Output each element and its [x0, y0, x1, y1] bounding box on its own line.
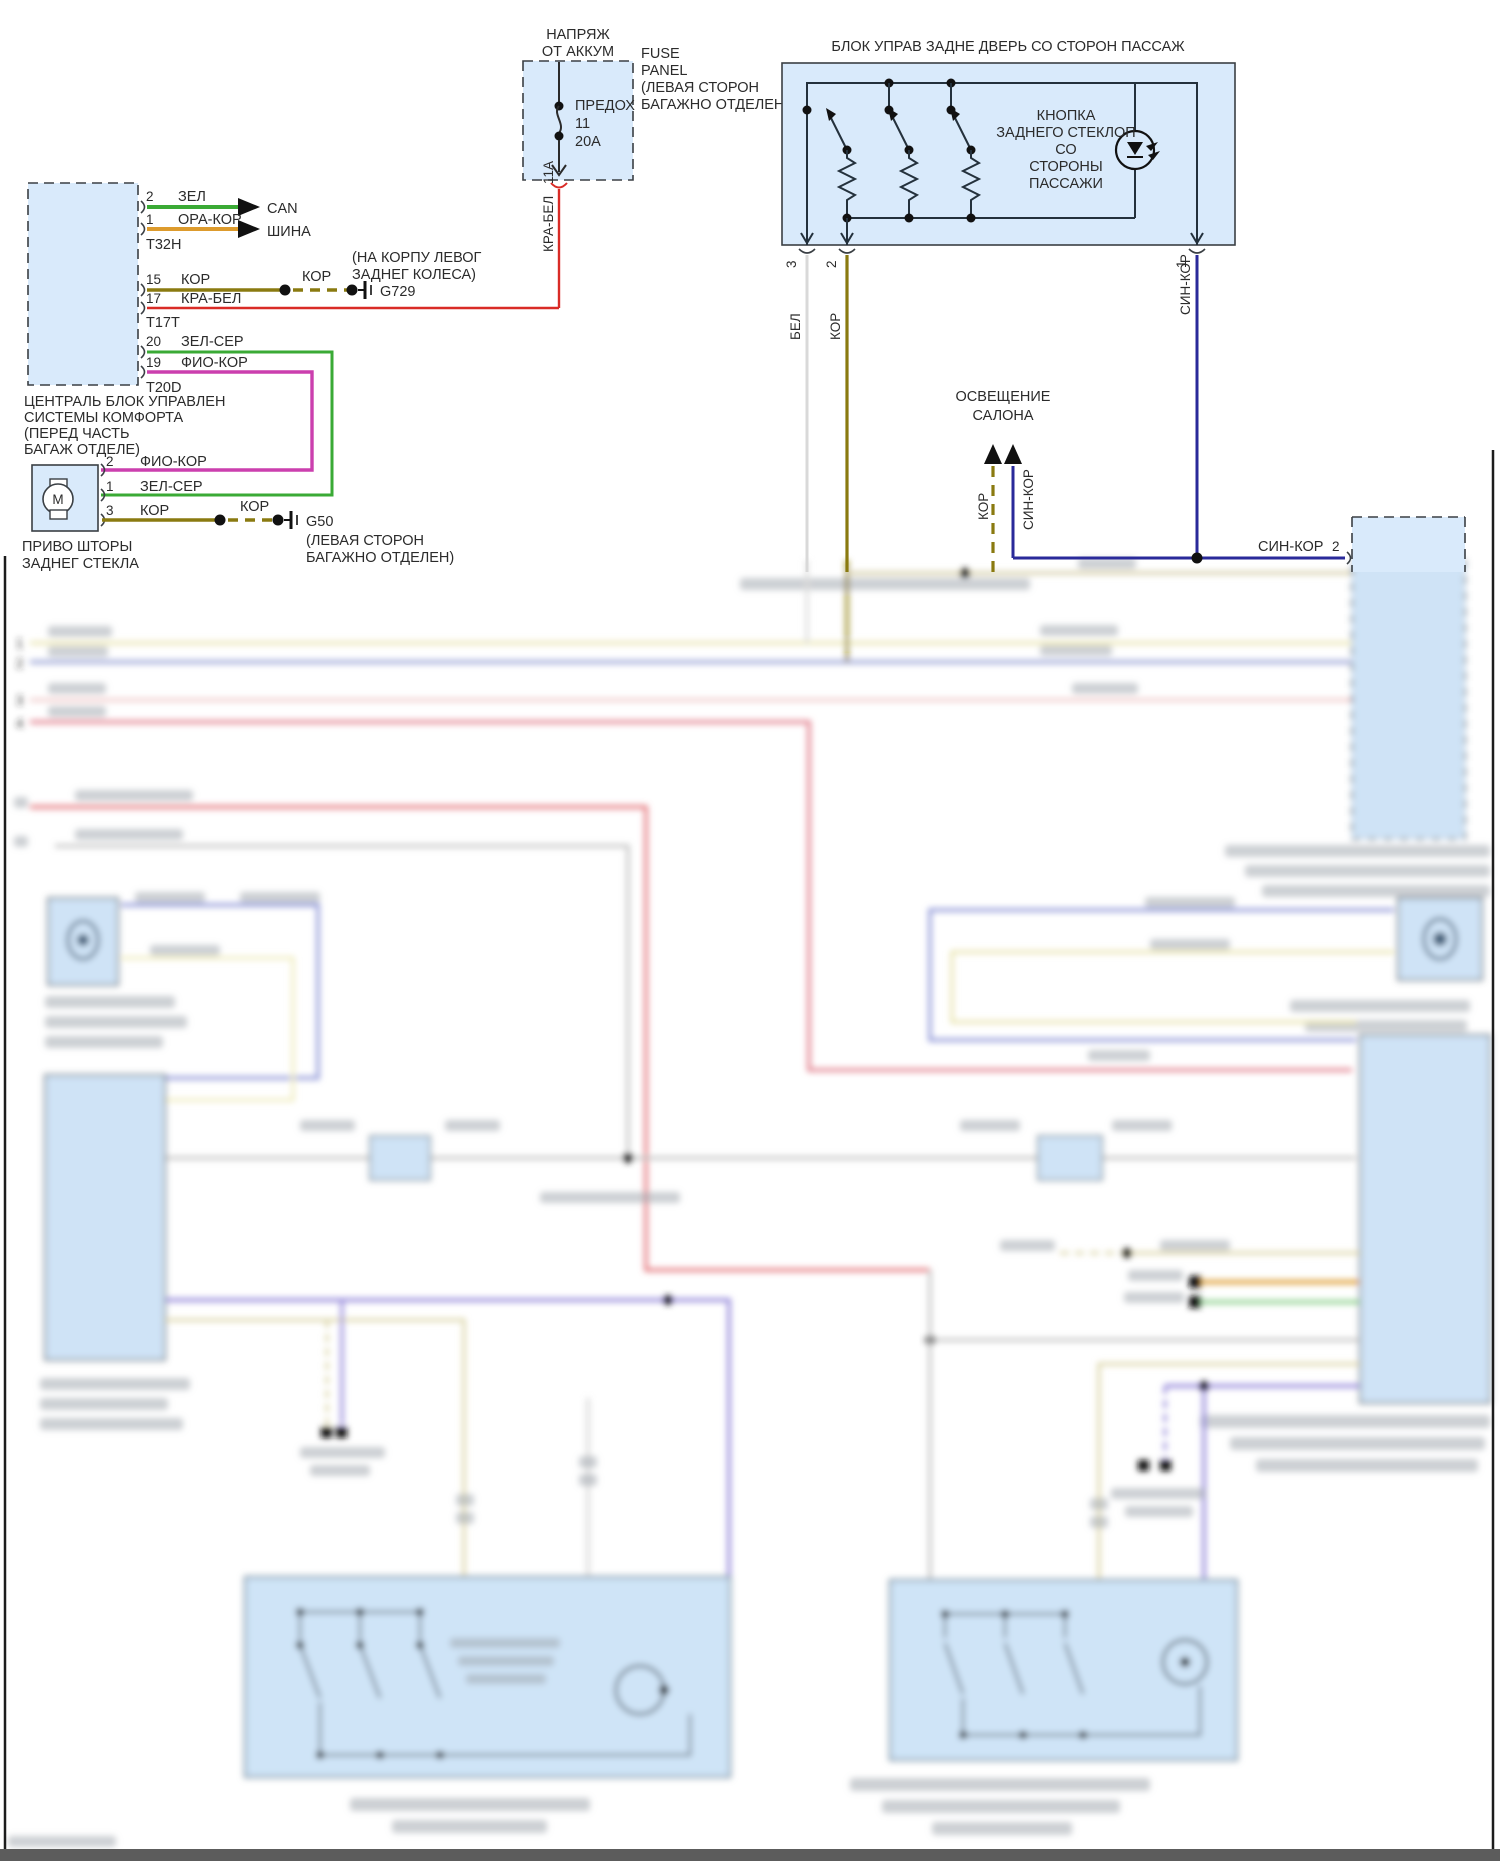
motor-pin1: 1 — [106, 479, 114, 494]
can-label: CAN — [267, 201, 298, 217]
panel-location-1: (ЛЕВАЯ СТОРОН — [641, 80, 759, 96]
panel-location-2: БАГАЖНО ОТДЕЛЕН) — [641, 97, 789, 113]
motor-title-1: ПРИВО ШТОРЫ — [22, 539, 132, 555]
bel-wire-label: БЕЛ — [788, 313, 803, 340]
pin19-wire-label: ФИО-КОР — [181, 355, 248, 371]
motor-pin3: 3 — [106, 503, 114, 518]
button-label-2: ЗАДНЕГО СТЕКЛОП — [996, 125, 1135, 141]
salon-label-2: САЛОНА — [972, 408, 1033, 424]
blur-right-tall-block — [1360, 1035, 1490, 1403]
pin15-number: 15 — [146, 272, 161, 287]
blur-right-switch-box — [890, 1580, 1237, 1760]
g50-label: G50 — [306, 514, 333, 530]
motor-wire1: ЗЕЛ-СЕР — [140, 479, 203, 495]
row-number-1: 1 — [16, 636, 24, 651]
bus-label: ШИНА — [267, 224, 311, 240]
comfort-title-2: СИСТЕМЫ КОМФОРТА — [24, 410, 184, 426]
blur-left-switch-box — [245, 1577, 730, 1777]
sin-kor-wire-label: СИН-КОР — [1178, 254, 1193, 315]
salon-label-1: ОСВЕЩЕНИЕ — [956, 389, 1051, 405]
g729-wire-label: КОР — [302, 269, 331, 285]
g50-note-2: БАГАЖНО ОТДЕЛЕН) — [306, 550, 454, 566]
motor-pin2: 2 — [106, 454, 114, 469]
g50-wire-label: КОР — [240, 499, 269, 515]
comfort-block-box — [28, 183, 138, 385]
pin20-number: 20 — [146, 334, 161, 349]
blur-right-dashed-block — [1352, 560, 1465, 839]
fuse-amp-label: 11А — [541, 161, 556, 184]
g729-label: G729 — [380, 284, 415, 300]
salon-sin-kor-label: СИН-КОР — [1021, 469, 1036, 530]
row-number-2: 2 — [16, 656, 24, 671]
connector-t32h: T32H — [146, 237, 181, 253]
page-bottom-band — [0, 1849, 1500, 1861]
connector-t17t: T17T — [146, 315, 180, 331]
g50-note-1: (ЛЕВАЯ СТОРОН — [306, 533, 424, 549]
pin1-wire-label: ОРА-КОР — [178, 212, 242, 228]
door-pin2-number: 2 — [824, 260, 839, 268]
panel-name-1: FUSE — [641, 46, 680, 62]
salon-kor-label: КОР — [976, 493, 991, 520]
button-label-1: КНОПКА — [1037, 108, 1096, 124]
pin17-number: 17 — [146, 291, 161, 306]
pin1-number: 1 — [146, 212, 154, 227]
supply-label-2: ОТ АККУМ — [542, 44, 614, 60]
g729-note-2: ЗАДНЕГ КОЛЕСА) — [352, 267, 476, 283]
row-number-4: 4 — [16, 716, 24, 731]
pin15-wire-label: КОР — [181, 272, 210, 288]
motor-symbol: M — [52, 492, 63, 507]
button-label-3: СО — [1055, 142, 1076, 158]
door-pin3-number: 3 — [784, 260, 799, 268]
right-conn-wire-label: СИН-КОР — [1258, 539, 1323, 555]
button-label-5: ПАССАЖИ — [1029, 176, 1103, 192]
comfort-title-4: БАГАЖ ОТДЕЛЕ) — [24, 442, 140, 458]
right-dashed-block-top — [1352, 517, 1465, 572]
pin17-wire-label: КРА-БЕЛ — [181, 291, 241, 307]
motor-title-2: ЗАДНЕГ СТЕКЛА — [22, 556, 139, 572]
blur-left-tall-block — [45, 1075, 165, 1360]
motor-wire2: ФИО-КОР — [140, 454, 207, 470]
kor-wire-label: КОР — [828, 313, 843, 340]
motor-wire3: КОР — [140, 503, 169, 519]
pin2-number: 2 — [146, 189, 154, 204]
panel-name-2: PANEL — [641, 63, 687, 79]
pin19-number: 19 — [146, 355, 161, 370]
page-background — [0, 0, 1500, 1861]
wiring-diagram: 1 2 3 4 — [0, 0, 1500, 1861]
fuse-label: ПРЕДОХ — [575, 98, 635, 114]
button-label-4: СТОРОНЫ — [1029, 159, 1102, 175]
comfort-title-1: ЦЕНТРАЛЬ БЛОК УПРАВЛЕН — [24, 394, 225, 410]
supply-label-1: НАПРЯЖ — [546, 27, 610, 43]
g729-note-1: (НА КОРПУ ЛЕВОГ — [352, 250, 482, 266]
pin2-wire-label: ЗЕЛ — [178, 189, 206, 205]
door-block-title: БЛОК УПРАВ ЗАДНЕ ДВЕРЬ СО СТОРОН ПАССАЖ — [831, 39, 1185, 55]
comfort-title-3: (ПЕРЕД ЧАСТЬ — [24, 426, 130, 442]
pin20-wire-label: ЗЕЛ-СЕР — [181, 334, 244, 350]
fuse-wire-label: КРА-БЕЛ — [541, 196, 556, 252]
row-number-3: 3 — [16, 693, 24, 708]
fuse-rating: 20А — [575, 134, 601, 150]
fuse-number: 11 — [575, 116, 590, 132]
right-conn-pin: 2 — [1332, 539, 1340, 554]
